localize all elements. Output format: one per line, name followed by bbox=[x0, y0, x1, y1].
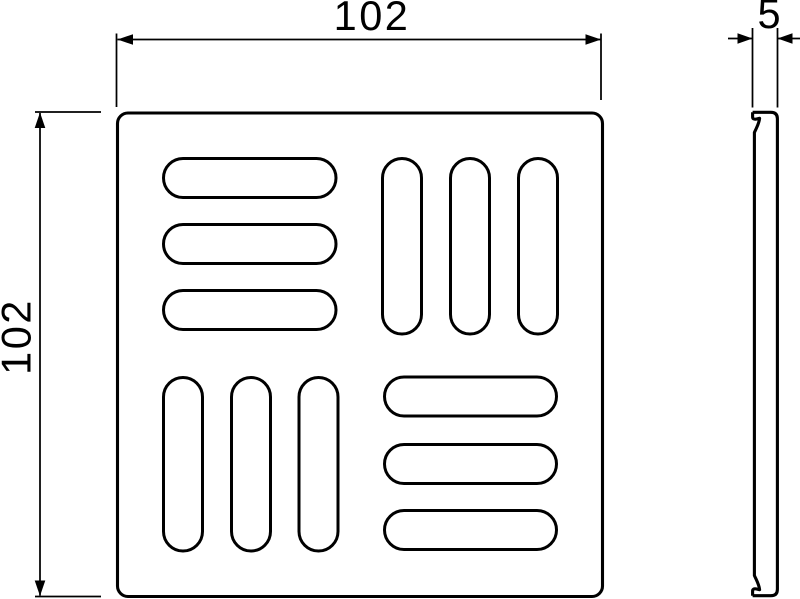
svg-text:102: 102 bbox=[334, 0, 411, 39]
svg-text:5: 5 bbox=[757, 0, 780, 37]
svg-text:102: 102 bbox=[0, 298, 40, 375]
